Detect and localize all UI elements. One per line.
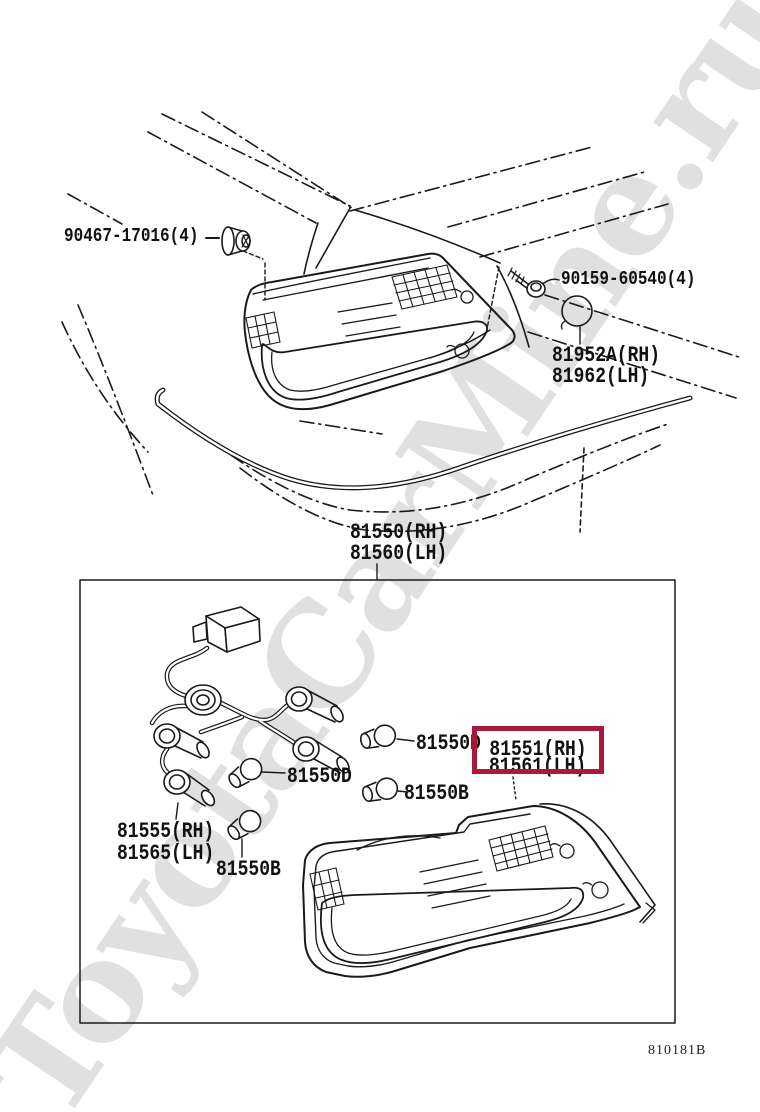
part-label-bulb-b1[interactable]: 81550B bbox=[404, 782, 469, 806]
leader-bulb-d2 bbox=[262, 772, 285, 773]
deck-band-outer bbox=[157, 390, 690, 488]
highlight-box[interactable]: 81551(RH) bbox=[472, 726, 604, 774]
parts-diagram-page: ToyotaCarMine.ru bbox=[0, 0, 760, 1112]
harness-grommet-icon bbox=[185, 685, 221, 715]
lens-window-inner bbox=[331, 899, 571, 955]
fender-curve-1 bbox=[78, 305, 154, 498]
part-label-lens-rh[interactable]: 81551(RH) bbox=[489, 738, 586, 762]
part-label-bulb-d2[interactable]: 81550D bbox=[287, 765, 352, 789]
deck-crease bbox=[300, 421, 382, 434]
part-label-assembly-lh[interactable]: 81560(LH) bbox=[350, 542, 447, 566]
bumper-curve-2 bbox=[240, 445, 660, 531]
roof-line-2 bbox=[162, 114, 350, 206]
part-label-socket-lh[interactable]: 81565(LH) bbox=[117, 842, 214, 866]
lamp-window-outer bbox=[262, 321, 487, 399]
harness-wires bbox=[152, 648, 296, 773]
body-line bbox=[68, 194, 122, 224]
part-label-socket-rh[interactable]: 81555(RH) bbox=[117, 820, 214, 844]
deck-band-inner bbox=[157, 390, 690, 488]
lamp-inner-top bbox=[263, 268, 428, 300]
pillar-line-1 bbox=[304, 223, 318, 274]
lens-hatch-center bbox=[489, 826, 553, 871]
leader-bulb-d1 bbox=[397, 739, 414, 741]
lens-mount-tabs bbox=[551, 844, 608, 898]
car-body-lines bbox=[62, 112, 742, 531]
lens-inner bbox=[314, 814, 624, 967]
diagram-code: 810181B bbox=[648, 1043, 706, 1059]
clip-icon bbox=[222, 227, 250, 255]
bumper-curve-1 bbox=[210, 424, 668, 512]
part-label-grommet-lh[interactable]: 81962(LH) bbox=[552, 365, 649, 389]
bulb-socket-icon bbox=[286, 687, 346, 724]
deck-line-c bbox=[480, 204, 668, 257]
parts-box-frame bbox=[80, 580, 675, 1023]
screw-icon bbox=[508, 268, 545, 297]
lamp-hatch-right bbox=[392, 265, 457, 309]
harness-connector-icon bbox=[193, 607, 260, 652]
deck-line-a bbox=[350, 147, 592, 211]
lamp-hatch-left bbox=[246, 312, 280, 348]
bulb-icon bbox=[360, 776, 399, 805]
bulb-icon bbox=[358, 723, 397, 752]
pillar-line-2 bbox=[316, 208, 350, 268]
tail-lamp-lens bbox=[303, 804, 655, 977]
roof-line-3 bbox=[202, 112, 355, 210]
part-label-bulb-b2[interactable]: 81550B bbox=[216, 858, 281, 882]
bulb-socket-icon bbox=[164, 770, 217, 808]
leader-lens-dotted bbox=[513, 777, 516, 800]
bulb-icon bbox=[225, 755, 266, 792]
tail-lamp-top bbox=[244, 254, 514, 409]
lens-stripes bbox=[420, 860, 490, 908]
grommet-icon bbox=[561, 296, 592, 329]
seam-dashed bbox=[580, 448, 584, 532]
lamp-stripes bbox=[338, 303, 400, 336]
lens-window-outer bbox=[321, 888, 583, 963]
leader-socket bbox=[176, 803, 178, 819]
fender-curve-2 bbox=[62, 322, 148, 452]
bulb-icon bbox=[224, 807, 265, 844]
leader-screw-to-lamp bbox=[486, 267, 499, 334]
part-label-clip[interactable]: 90467-17016(4) bbox=[64, 225, 198, 247]
part-label-screw[interactable]: 90159-60540(4) bbox=[561, 268, 695, 290]
